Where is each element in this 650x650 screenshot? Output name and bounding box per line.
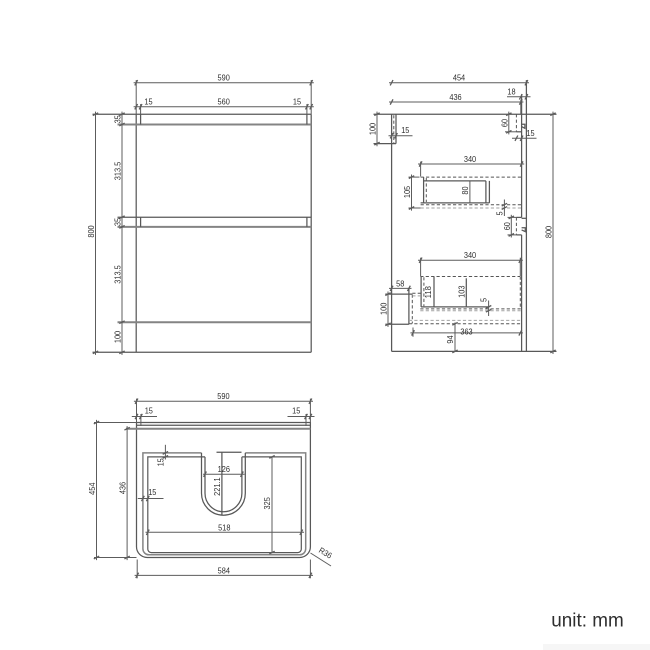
svg-text:313.5: 313.5 xyxy=(113,161,123,180)
svg-text:35: 35 xyxy=(113,115,123,123)
svg-text:454: 454 xyxy=(453,73,466,83)
svg-text:436: 436 xyxy=(118,482,128,495)
svg-text:15: 15 xyxy=(145,406,153,416)
svg-text:590: 590 xyxy=(217,391,230,401)
svg-text:221.1: 221.1 xyxy=(212,477,222,496)
svg-text:18: 18 xyxy=(507,87,515,97)
svg-text:15: 15 xyxy=(155,458,165,466)
svg-text:454: 454 xyxy=(87,482,97,495)
svg-text:94: 94 xyxy=(445,335,455,343)
svg-text:340: 340 xyxy=(464,154,477,164)
svg-text:118: 118 xyxy=(423,286,433,299)
svg-text:58: 58 xyxy=(396,278,404,288)
svg-text:5: 5 xyxy=(495,211,505,215)
svg-text:60: 60 xyxy=(502,222,512,230)
svg-text:590: 590 xyxy=(218,73,231,83)
svg-text:800: 800 xyxy=(544,226,554,239)
svg-text:15: 15 xyxy=(526,128,534,138)
svg-text:5: 5 xyxy=(479,298,489,302)
svg-text:100: 100 xyxy=(379,302,389,315)
svg-text:80: 80 xyxy=(460,186,470,194)
svg-text:560: 560 xyxy=(218,97,231,107)
svg-text:15: 15 xyxy=(148,487,156,497)
svg-text:100: 100 xyxy=(368,123,378,136)
svg-text:518: 518 xyxy=(218,522,231,532)
svg-text:15: 15 xyxy=(292,406,300,416)
svg-text:15: 15 xyxy=(144,97,152,107)
svg-text:unit: mm: unit: mm xyxy=(551,610,624,632)
svg-text:325: 325 xyxy=(262,497,272,510)
svg-text:800: 800 xyxy=(86,225,96,238)
svg-text:60: 60 xyxy=(499,119,509,127)
svg-text:15: 15 xyxy=(293,97,301,107)
svg-text:105: 105 xyxy=(402,186,412,199)
svg-text:436: 436 xyxy=(449,92,462,102)
svg-text:313.5: 313.5 xyxy=(113,265,123,284)
svg-text:35: 35 xyxy=(113,218,123,226)
svg-text:126: 126 xyxy=(218,464,231,474)
svg-text:100: 100 xyxy=(113,331,123,344)
svg-text:103: 103 xyxy=(456,285,466,298)
svg-text:15: 15 xyxy=(401,125,409,135)
svg-text:363: 363 xyxy=(460,326,473,336)
svg-text:340: 340 xyxy=(464,250,477,260)
svg-text:584: 584 xyxy=(218,565,231,575)
